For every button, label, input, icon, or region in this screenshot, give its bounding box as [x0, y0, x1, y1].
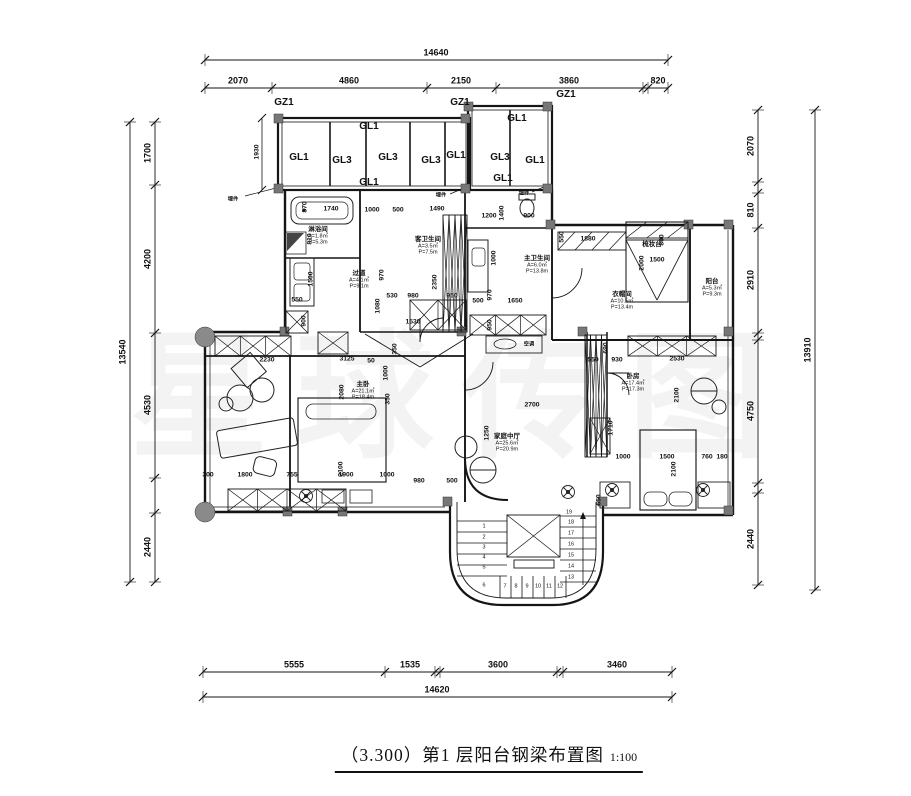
round-table [227, 385, 253, 411]
fixtures [216, 194, 730, 510]
nightstand [698, 482, 730, 508]
staircase [450, 502, 603, 605]
floor-plan-drawing: 星球传图 [0, 0, 911, 796]
drawing-title: （3.300）第1 层阳台钢梁布置图 1:100 [335, 742, 643, 773]
window-band [245, 106, 552, 196]
title-scale: 1:100 [610, 750, 637, 764]
bathtub [291, 197, 353, 224]
vanity-sinks [290, 258, 314, 306]
desk [216, 417, 298, 458]
desk-chair [252, 456, 277, 478]
title-text: （3.300）第1 层阳台钢梁布置图 [341, 745, 604, 765]
columns [195, 102, 733, 522]
walls [205, 190, 733, 515]
floor-plan-svg [0, 0, 911, 796]
bedroom-bed [640, 430, 696, 510]
master-bed [298, 398, 386, 482]
wardrobe [626, 222, 688, 302]
generated-linework [124, 54, 821, 703]
armchair [231, 352, 266, 387]
